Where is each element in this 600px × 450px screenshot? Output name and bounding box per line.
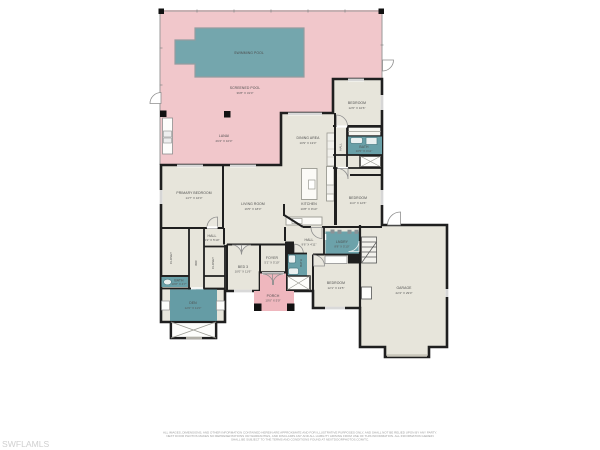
svg-text:10'9" X 13'0": 10'9" X 13'0" [300,141,317,145]
svg-text:8'8" X 5'10": 8'8" X 5'10" [334,245,349,249]
svg-text:11'2" X 12'6": 11'2" X 12'6" [350,201,367,205]
svg-text:10'8" X 4'7": 10'8" X 4'7" [171,282,186,286]
svg-text:SHALL BE SUBJECT TO THE TERMS: SHALL BE SUBJECT TO THE TERMS AND CONDIT… [231,438,369,442]
svg-text:SCREENED POOL: SCREENED POOL [230,86,261,90]
svg-text:10'0" X 5'0": 10'0" X 5'0" [265,299,280,303]
svg-text:BATH: BATH [299,259,303,267]
svg-text:BEDROOM: BEDROOM [348,101,366,105]
svg-text:14'7" X 16'0": 14'7" X 16'0" [186,196,203,200]
svg-text:FOYER: FOYER [266,256,279,260]
svg-text:GARAGE: GARAGE [396,286,412,290]
svg-text:12'1" X 13'5": 12'1" X 13'5" [328,286,345,290]
svg-text:HALL: HALL [339,143,343,151]
svg-text:DINING AREA: DINING AREA [297,136,321,140]
svg-text:KITCHEN: KITCHEN [301,202,317,206]
svg-text:BED 3: BED 3 [238,265,248,269]
svg-text:12'0" X 11'0": 12'0" X 11'0" [185,306,202,310]
svg-text:36'8" X 31'0": 36'8" X 31'0" [237,91,254,95]
svg-text:10'0" X 11'6": 10'0" X 11'6" [235,270,252,274]
svg-text:PORCH: PORCH [267,294,280,298]
svg-text:PRIMARY BEDROOM: PRIMARY BEDROOM [176,191,211,195]
svg-text:CLOSET: CLOSET [169,252,173,264]
svg-text:DEN: DEN [189,301,197,305]
svg-text:16'5" X 18'0": 16'5" X 18'0" [245,207,262,211]
svg-text:10'8" X 9'10": 10'8" X 9'10" [301,207,318,211]
svg-text:BEDROOM: BEDROOM [327,281,345,285]
svg-text:LNDRY: LNDRY [336,240,349,244]
svg-text:WIC: WIC [194,259,198,266]
svg-text:12'6" X 10'6": 12'6" X 10'6" [349,106,366,110]
svg-text:SWIMMING POOL: SWIMMING POOL [234,51,264,55]
svg-text:BEDROOM: BEDROOM [349,196,367,200]
svg-text:LANAI: LANAI [219,134,229,138]
svg-text:9'6" X 4'11": 9'6" X 4'11" [301,243,316,247]
svg-text:22'4" X 29'0": 22'4" X 29'0" [396,291,413,295]
svg-text:SWFLAMLS: SWFLAMLS [2,439,50,449]
svg-text:29'4" X 10'0": 29'4" X 10'0" [216,139,233,143]
svg-text:CLOSET: CLOSET [211,257,215,269]
svg-text:5'1" X 5'10": 5'1" X 5'10" [264,261,279,265]
svg-text:HALL: HALL [305,238,314,242]
svg-text:4'2" X 5'10": 4'2" X 5'10" [204,238,219,242]
svg-text:10'5" X 4'11": 10'5" X 4'11" [356,149,373,153]
svg-text:LIVING ROOM: LIVING ROOM [241,202,265,206]
